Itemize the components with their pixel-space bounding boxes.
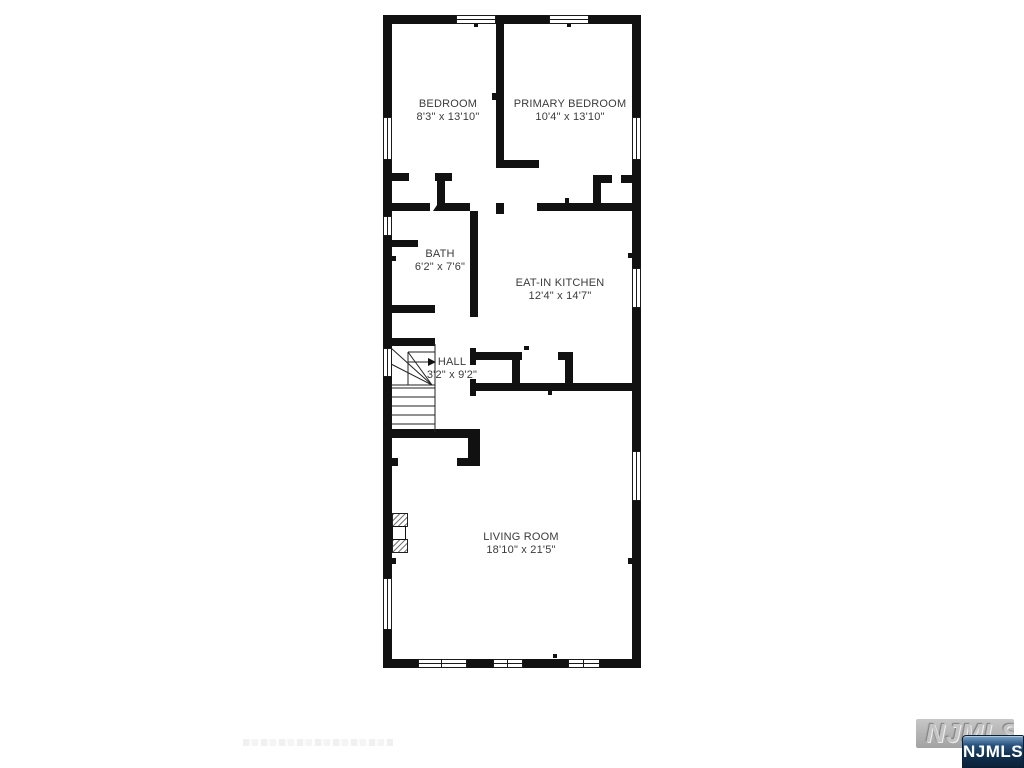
wall [383,160,392,216]
wall [565,360,573,385]
wall [470,352,522,360]
wall [621,175,632,183]
window-symbol [549,15,589,24]
window-symbol [418,659,467,668]
wall-tick [553,654,557,658]
wall [470,383,632,391]
room-dims: 3'2" x 9'2" [427,369,477,382]
wall [632,501,641,668]
room-label-eat-in-kitchen: EAT-IN KITCHEN 12'4" x 14'7" [516,277,605,303]
floor-plan-canvas: BEDROOM 8'3" x 13'10" PRIMARY BEDROOM 10… [0,0,1024,768]
room-label-hall: HALL 3'2" x 9'2" [427,356,477,382]
room-name: EAT-IN KITCHEN [516,277,605,290]
wall [392,240,418,247]
wall [558,352,573,360]
wall [632,160,641,268]
wall [392,203,430,211]
fireplace-hatch [392,513,408,527]
room-dims: 8'3" x 13'10" [417,111,480,124]
wall-tick [548,391,552,395]
wall [496,203,504,214]
wall [445,203,470,211]
window-symbol [383,117,392,160]
room-name: BEDROOM [417,98,480,111]
room-label-bath: BATH 6'2" x 7'6" [415,248,465,274]
wall [504,160,539,168]
room-label-bedroom: BEDROOM 8'3" x 13'10" [417,98,480,124]
wall-tick [628,253,632,258]
door-marker [524,346,529,350]
room-dims: 12'4" x 14'7" [516,290,605,303]
window-symbol [632,117,641,160]
wall [457,458,480,466]
door-marker [433,205,441,211]
wall [383,630,392,668]
wall [537,203,632,211]
wall [383,236,392,348]
window-tick [474,24,478,27]
wall-tick [392,558,396,564]
window-symbol [568,659,600,668]
window-symbol [632,268,641,308]
room-name: PRIMARY BEDROOM [514,98,627,111]
room-name: BATH [415,248,465,261]
wall [512,360,520,385]
wall [392,305,435,313]
window-symbol [632,451,641,501]
fireplace-firebox [392,526,406,540]
room-dims: 6'2" x 7'6" [415,261,465,274]
faint-disclaimer-text [243,739,393,746]
wall [392,173,409,181]
room-dims: 10'4" x 13'10" [514,111,627,124]
wall [496,24,504,168]
window-symbol [383,578,392,630]
room-label-living-room: LIVING ROOM 18'10" x 21'5" [483,531,559,557]
fireplace-hatch [392,539,408,553]
wall [496,15,549,24]
wall [632,308,641,451]
wall [593,175,601,205]
window-symbol [456,15,496,24]
wall [467,659,493,668]
wall [523,659,568,668]
room-dims: 18'10" x 21'5" [483,544,559,557]
wall-tick [492,93,496,100]
room-name: LIVING ROOM [483,531,559,544]
njmls-badge: NJMLS [962,735,1024,768]
wall [383,15,456,24]
wall [632,15,641,117]
wall [470,211,478,317]
room-label-primary-bedroom: PRIMARY BEDROOM 10'4" x 13'10" [514,98,627,124]
wall [601,175,612,183]
window-tick [567,24,571,27]
window-symbol [493,659,523,668]
room-name: HALL [427,356,477,369]
wall-tick [628,558,632,564]
wall [383,15,392,117]
window-symbol [383,216,392,236]
wall-tick [565,198,569,203]
wall-tick [392,256,396,261]
wall [392,458,398,466]
